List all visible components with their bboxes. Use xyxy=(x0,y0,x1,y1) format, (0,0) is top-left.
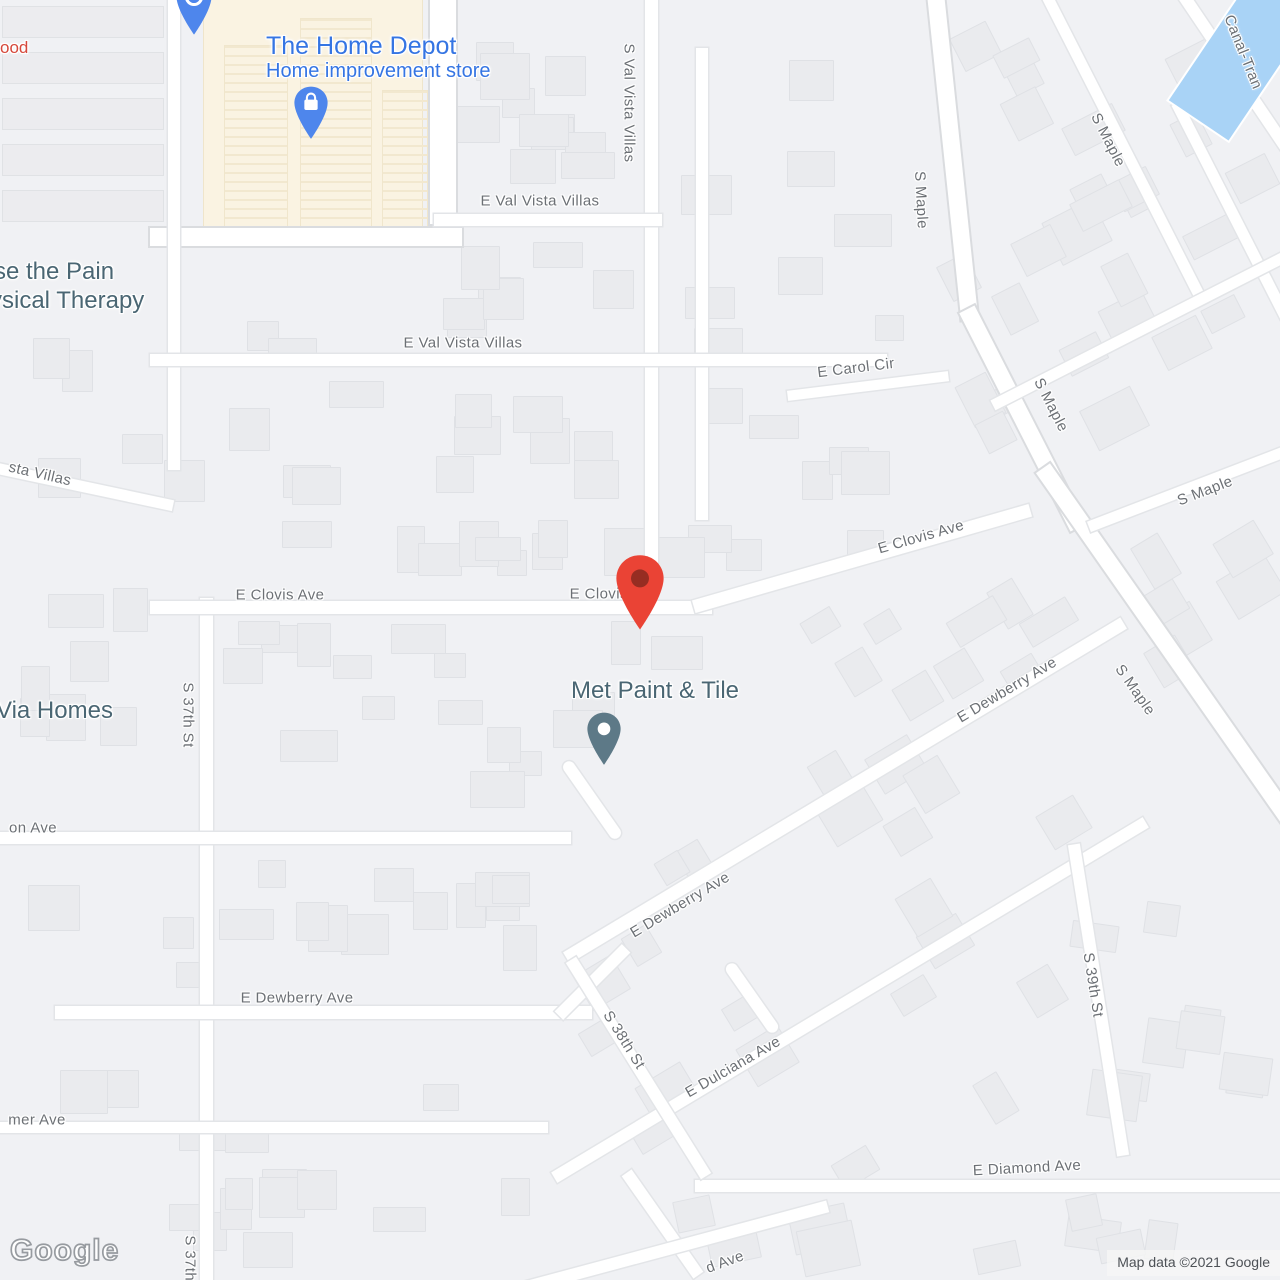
road xyxy=(0,832,571,844)
street-label: E Val Vista Villas xyxy=(481,193,600,210)
building xyxy=(533,242,583,268)
building xyxy=(225,1178,253,1209)
building xyxy=(538,520,569,558)
poi-label-home-depot-title[interactable]: The Home Depot xyxy=(266,32,456,61)
street-label: E Diamond Ave xyxy=(972,1157,1081,1180)
building xyxy=(1016,963,1070,1018)
building xyxy=(122,434,163,463)
building xyxy=(296,902,328,941)
building xyxy=(787,151,835,187)
road xyxy=(55,1006,592,1019)
building xyxy=(329,381,384,408)
street-label: S Maple xyxy=(1030,375,1071,434)
building xyxy=(280,730,338,762)
building xyxy=(1224,152,1280,204)
street-label: S 37th St xyxy=(180,682,197,747)
road xyxy=(168,0,180,470)
building xyxy=(593,270,634,309)
building xyxy=(949,21,1002,72)
building xyxy=(789,60,834,101)
street-label: S 39th St xyxy=(1079,951,1106,1018)
building xyxy=(834,214,891,246)
building xyxy=(223,648,262,684)
map-canvas[interactable]: E Val Vista VillasS Val Vista VillasE Va… xyxy=(0,0,1280,1280)
met-paint-tile-pin[interactable] xyxy=(585,711,623,768)
building xyxy=(60,1070,108,1114)
building xyxy=(778,257,824,295)
building xyxy=(455,394,492,428)
building xyxy=(1176,1010,1226,1055)
building xyxy=(889,973,936,1016)
building xyxy=(438,700,483,725)
street-label: E Val Vista Villas xyxy=(404,335,523,352)
road xyxy=(411,1201,829,1280)
road xyxy=(787,371,949,401)
building xyxy=(685,287,735,319)
building xyxy=(423,1084,459,1112)
road xyxy=(150,228,462,246)
google-logo[interactable]: Google xyxy=(10,1234,119,1268)
street-label: E Clovis Ave xyxy=(236,587,325,604)
building xyxy=(519,114,569,146)
map-attribution: Map data ©2021 Google xyxy=(1107,1250,1280,1276)
street-label: on Ave xyxy=(9,820,57,837)
pin-inner-dot xyxy=(631,569,649,587)
building xyxy=(933,647,985,699)
building xyxy=(413,892,448,930)
building xyxy=(292,467,341,505)
pin-body xyxy=(587,713,620,765)
building xyxy=(374,868,414,902)
building xyxy=(48,594,105,628)
building xyxy=(258,860,286,888)
building xyxy=(800,606,843,645)
building xyxy=(561,152,614,179)
building xyxy=(70,641,110,682)
building xyxy=(574,460,619,499)
road xyxy=(645,0,658,595)
poi-label-home-depot-subtitle[interactable]: Home improvement store xyxy=(266,60,491,83)
road xyxy=(561,759,624,841)
building xyxy=(672,1195,716,1234)
building xyxy=(219,909,274,940)
building xyxy=(169,1204,203,1230)
building xyxy=(229,408,270,451)
building xyxy=(373,1207,426,1231)
building xyxy=(282,521,332,548)
street-label: S 37th St xyxy=(182,1235,199,1280)
pin-body xyxy=(616,555,663,629)
building xyxy=(163,917,194,949)
poi-label-physical-therapy-line1[interactable]: se the Pain xyxy=(0,258,114,286)
pin-hole xyxy=(598,723,611,736)
building xyxy=(461,246,499,290)
building xyxy=(501,1178,530,1216)
building xyxy=(436,456,473,492)
building xyxy=(875,315,905,341)
building xyxy=(1065,1193,1103,1232)
building-row xyxy=(2,98,164,130)
building xyxy=(470,771,525,809)
building xyxy=(113,588,148,631)
building xyxy=(475,537,521,561)
building xyxy=(33,338,71,379)
building xyxy=(1078,386,1149,452)
building xyxy=(492,875,530,905)
road xyxy=(695,1180,1280,1192)
home-depot-store-pin[interactable] xyxy=(292,85,330,142)
building xyxy=(882,807,933,858)
building xyxy=(991,282,1039,335)
building xyxy=(434,653,467,678)
road xyxy=(150,354,887,366)
building xyxy=(503,925,537,971)
building xyxy=(510,149,556,184)
building xyxy=(487,727,521,763)
restaurant-pin[interactable] xyxy=(174,0,214,38)
building xyxy=(28,885,80,932)
street-label: E Dewberry Ave xyxy=(241,990,354,1007)
street-label: S Maple xyxy=(1111,661,1158,718)
building xyxy=(1035,795,1093,851)
building-row xyxy=(2,190,164,222)
building xyxy=(1000,86,1054,142)
building xyxy=(545,56,586,96)
road xyxy=(434,214,662,226)
building xyxy=(418,543,462,576)
poi-label-via-homes[interactable]: Via Homes xyxy=(0,697,113,725)
destination-pin[interactable] xyxy=(613,553,667,634)
poi-label-food-fragment[interactable]: ood xyxy=(0,38,28,58)
building xyxy=(243,1232,293,1268)
building xyxy=(391,624,446,654)
building xyxy=(333,655,372,679)
building xyxy=(1219,1052,1274,1097)
building xyxy=(297,1170,336,1210)
building xyxy=(513,396,563,433)
building xyxy=(841,451,890,495)
building xyxy=(651,636,702,669)
building xyxy=(297,623,332,667)
street-label: S Val Vista Villas xyxy=(621,44,638,163)
building xyxy=(834,646,883,697)
road xyxy=(696,48,708,520)
building xyxy=(443,298,485,330)
building xyxy=(972,1071,1020,1125)
building xyxy=(341,914,389,955)
building xyxy=(863,608,902,645)
street-label: S Maple xyxy=(911,171,931,230)
road xyxy=(200,598,213,1280)
building xyxy=(973,1240,1021,1275)
building-row xyxy=(2,144,164,176)
parking-rows xyxy=(382,90,428,230)
building xyxy=(1143,901,1181,937)
building xyxy=(891,669,944,722)
poi-label-met-paint-tile[interactable]: Met Paint & Tile xyxy=(571,677,739,705)
building xyxy=(238,621,280,645)
poi-label-physical-therapy-line2[interactable]: ysical Therapy xyxy=(0,287,144,315)
building xyxy=(749,415,800,439)
building-row xyxy=(2,6,164,38)
building xyxy=(1130,532,1182,590)
street-label: mer Ave xyxy=(8,1112,66,1129)
road xyxy=(0,1122,548,1133)
building xyxy=(362,696,395,720)
